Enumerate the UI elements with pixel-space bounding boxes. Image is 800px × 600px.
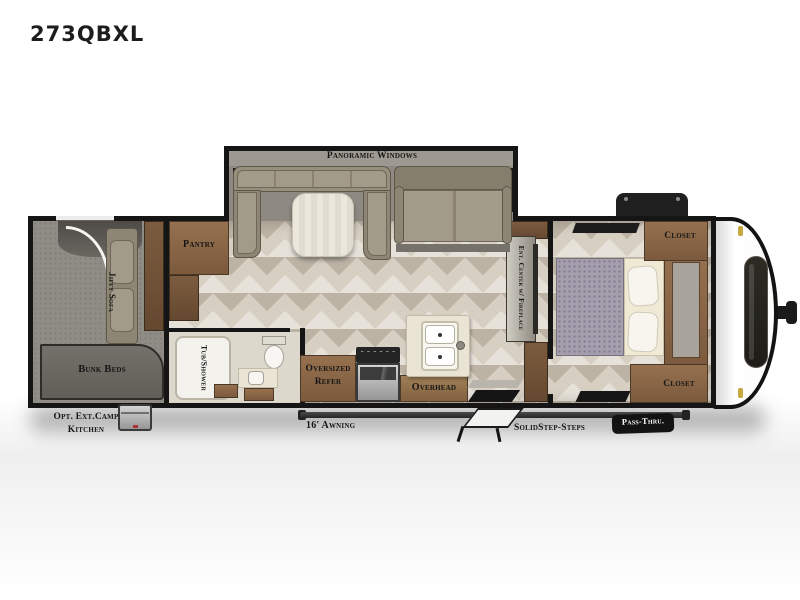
entry-threshold — [467, 380, 523, 388]
oven-window — [360, 367, 396, 380]
tv-icon — [533, 244, 538, 334]
toilet-icon — [264, 345, 284, 369]
bunk-beds-label: Bunk Beds — [40, 364, 164, 376]
bed-mattress — [556, 258, 624, 356]
refer-label-line1: Oversized — [300, 364, 356, 374]
brand-logo-badge-icon — [744, 256, 768, 368]
bedroom-window-top — [572, 223, 640, 233]
bunkroom-cabinet-wall — [144, 221, 164, 331]
window-guard-rivet-icon — [676, 197, 680, 201]
pillow-icon — [627, 311, 659, 353]
dinette-cushion-right — [367, 192, 387, 256]
pantry-label: Pantry — [171, 239, 227, 250]
sofa-step — [396, 244, 510, 252]
refer-label-line2: Refer — [300, 377, 356, 387]
sofa-arm-right — [502, 186, 512, 244]
camp-kitchen-label-line2: Kitchen — [40, 425, 132, 435]
hitch-coupler — [786, 301, 797, 324]
dinette-cushion-left — [237, 192, 257, 254]
jiffy-sofa-label: Jiffy Sofa — [106, 272, 116, 312]
marker-light-icon — [738, 226, 743, 236]
marker-light-icon — [738, 388, 743, 398]
wardrobe-mirror — [672, 262, 700, 358]
ent-center-lower-cabinet — [524, 342, 548, 402]
entry-door-mat — [468, 390, 520, 402]
bedroom-rug — [575, 391, 630, 402]
awning-end-cap — [682, 410, 690, 420]
camp-kitchen-label-line1: Opt. Ext.Camp — [40, 412, 132, 422]
page-title: 273QBXL — [30, 22, 144, 46]
sink-drain-icon — [438, 333, 442, 337]
sofa-seat — [398, 190, 508, 242]
sofa-back — [394, 166, 512, 190]
cooktop-knobs-icon — [359, 350, 397, 353]
tub-step — [214, 384, 238, 398]
closet-bottom-label: Closet — [650, 379, 708, 389]
ent-center-label: Ent. Center w/ Fireplace — [517, 246, 525, 331]
window-guard-rivet-icon — [624, 197, 628, 201]
faucet-icon — [456, 341, 465, 350]
steps-label: SolidStep-Steps — [514, 423, 618, 433]
camp-kitchen-latch-icon — [133, 425, 138, 428]
sofa-arm-left — [394, 186, 404, 244]
overhead-label: Overhead — [400, 382, 468, 393]
bedroom-wall-stub — [548, 394, 553, 403]
floorplan-canvas: 273QBXL — [0, 0, 800, 600]
sink-drain-icon — [438, 355, 442, 359]
tub-shower-label: Tub/Shower — [199, 345, 208, 391]
pillow-icon — [627, 265, 660, 307]
bath-wall-top — [164, 328, 290, 332]
logo-sheen — [749, 264, 754, 360]
bedroom-wall — [548, 221, 553, 359]
dinette-table — [292, 193, 354, 257]
bath-drawer — [244, 388, 274, 401]
panoramic-windows-label: Panoramic Windows — [241, 151, 503, 161]
bath-sink-icon — [248, 371, 264, 385]
dinette-cushions — [237, 170, 387, 188]
pantry-cabinet-lower — [169, 275, 199, 321]
bunkroom-wall — [164, 221, 169, 403]
toilet-tank — [262, 336, 286, 345]
closet-top-label: Closet — [652, 231, 708, 241]
awning-label: 16' Awning — [306, 420, 382, 431]
